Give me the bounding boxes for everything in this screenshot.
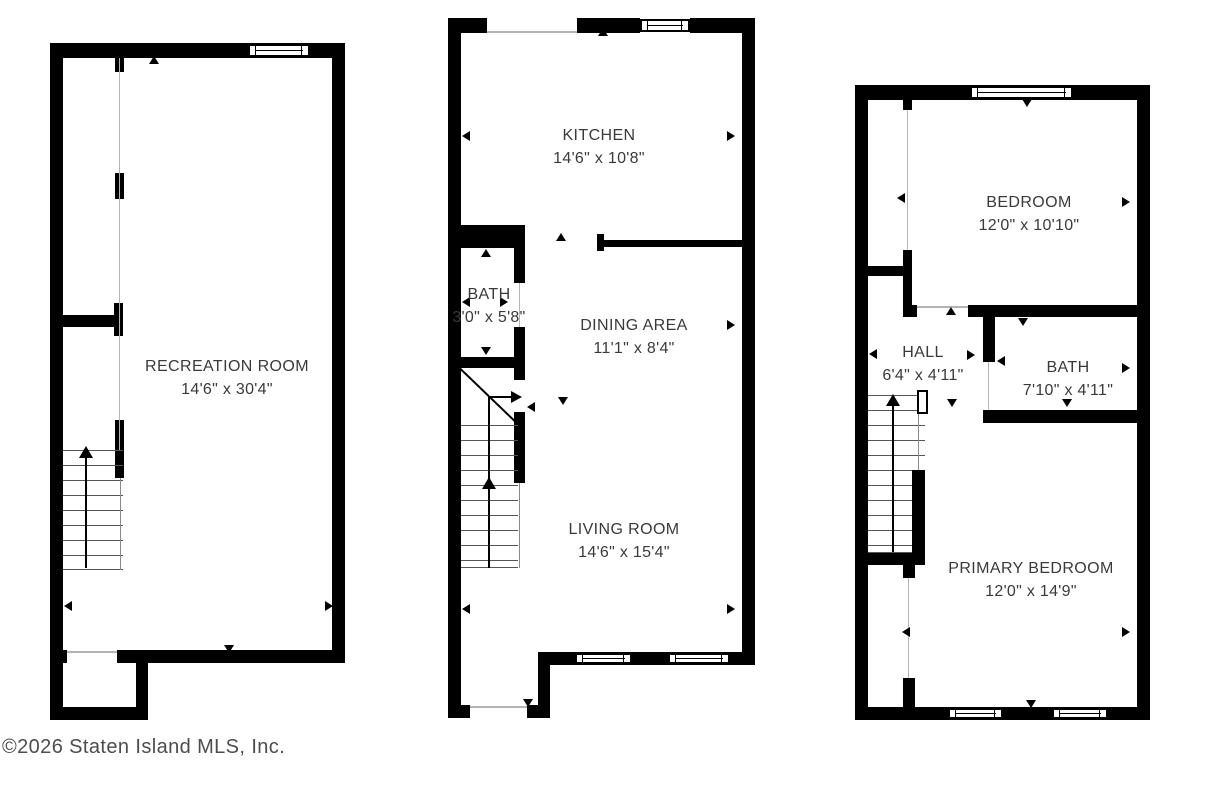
wall: [1137, 85, 1150, 720]
wall: [50, 43, 63, 720]
floor-plan-sheet: RECREATION ROOM 14'6" x 30'4": [0, 0, 1205, 786]
window-symbol: [248, 44, 310, 57]
window-symbol: [1052, 708, 1108, 719]
stair-edge-line: [918, 412, 919, 470]
measure-arrow: [149, 56, 159, 64]
stair-direction-arrow: [489, 396, 513, 398]
wall: [855, 85, 868, 720]
room-name: RECREATION ROOM: [102, 357, 352, 376]
room-name: KITCHEN: [499, 126, 699, 145]
room-name: PRIMARY BEDROOM: [906, 559, 1156, 578]
stair-direction-arrow: [892, 404, 894, 552]
room-dimensions: 12'0" x 10'10": [929, 216, 1129, 235]
partition-line: [907, 110, 908, 250]
room-dimensions: 14'6" x 15'4": [524, 543, 724, 562]
measure-arrow: [1062, 399, 1072, 407]
room-label-bedroom: BEDROOM 12'0" x 10'10": [929, 193, 1129, 235]
room-dimensions: 6'4" x 4'11": [848, 366, 998, 385]
wall: [514, 248, 525, 283]
window-symbol: [970, 86, 1073, 99]
measure-arrow: [481, 249, 491, 257]
measure-arrow: [902, 627, 910, 637]
measure-arrow: [556, 233, 566, 241]
wall: [983, 410, 1150, 423]
staircase: [63, 450, 123, 570]
wall: [903, 305, 917, 317]
room-dimensions: 11'1" x 8'4": [534, 339, 734, 358]
measure-arrow: [1122, 627, 1130, 637]
measure-arrow: [462, 131, 470, 141]
window-symbol: [640, 19, 690, 32]
measure-arrow: [64, 601, 72, 611]
measure-arrow: [727, 131, 735, 141]
wall: [600, 240, 755, 247]
room-label-living-room: LIVING ROOM 14'6" x 15'4": [524, 520, 724, 562]
room-label-hall: HALL 6'4" x 4'11": [848, 343, 998, 385]
wall: [448, 357, 525, 368]
room-label-recreation-room: RECREATION ROOM 14'6" x 30'4": [102, 357, 352, 399]
room-label-primary-bedroom: PRIMARY BEDROOM 12'0" x 14'9": [906, 559, 1156, 601]
wall-opening-line: [487, 31, 577, 33]
measure-arrow: [1026, 700, 1036, 708]
wall: [448, 705, 470, 718]
wall: [903, 678, 915, 707]
room-name: LIVING ROOM: [524, 520, 724, 539]
wall: [742, 18, 755, 665]
wall: [912, 470, 925, 562]
wall: [868, 266, 903, 276]
wall: [903, 100, 912, 110]
measure-arrow: [325, 601, 333, 611]
measure-arrow: [897, 193, 905, 203]
room-name: BATH: [993, 358, 1143, 377]
window-symbol: [668, 653, 730, 664]
copyright-text: ©2026 Staten Island MLS, Inc.: [2, 736, 285, 759]
room-dimensions: 14'6" x 10'8": [499, 149, 699, 168]
measure-arrow: [598, 28, 608, 36]
wall: [514, 327, 525, 380]
stair-direction-arrow: [85, 458, 87, 568]
room-name: HALL: [848, 343, 998, 362]
measure-arrow: [947, 399, 957, 407]
wall: [50, 707, 148, 720]
room-label-bath-upper: BATH 7'10" x 4'11": [993, 358, 1143, 400]
wall: [50, 650, 67, 663]
measure-arrow: [527, 402, 535, 412]
stair-newel-post: [917, 390, 928, 414]
room-dimensions: 14'6" x 30'4": [102, 380, 352, 399]
window-symbol: [948, 708, 1003, 719]
window-symbol: [575, 653, 632, 664]
measure-arrow: [523, 699, 533, 707]
room-name: BATH: [424, 285, 554, 304]
room-label-kitchen: KITCHEN 14'6" x 10'8": [499, 126, 699, 168]
stair-direction-arrow-head: [511, 391, 522, 403]
room-name: BEDROOM: [929, 193, 1129, 212]
measure-arrow: [1022, 99, 1032, 107]
wall: [63, 315, 117, 327]
measure-arrow: [727, 604, 735, 614]
wall: [577, 18, 640, 33]
stair-direction-arrow-head: [886, 394, 900, 406]
wall-opening-line: [67, 651, 117, 653]
wall: [332, 43, 345, 663]
measure-arrow: [462, 604, 470, 614]
room-dimensions: 7'10" x 4'11": [993, 381, 1143, 400]
measure-arrow: [1018, 318, 1028, 326]
stair-direction-arrow-head: [482, 477, 496, 489]
wall: [448, 225, 525, 248]
room-dimensions: 12'0" x 14'9": [906, 582, 1156, 601]
wall-opening-line: [917, 306, 968, 308]
measure-arrow: [481, 347, 491, 355]
wall: [136, 655, 148, 720]
stair-direction-arrow-head: [79, 446, 93, 458]
wall: [968, 305, 1150, 317]
wall-opening-line: [470, 706, 527, 708]
measure-arrow: [558, 397, 568, 405]
measure-arrow: [224, 645, 234, 653]
stair-edge-line: [519, 483, 520, 568]
stair-edge-line: [120, 478, 121, 570]
room-label-dining-area: DINING AREA 11'1" x 8'4": [534, 316, 734, 358]
room-name: DINING AREA: [534, 316, 734, 335]
measure-arrow: [946, 307, 956, 315]
